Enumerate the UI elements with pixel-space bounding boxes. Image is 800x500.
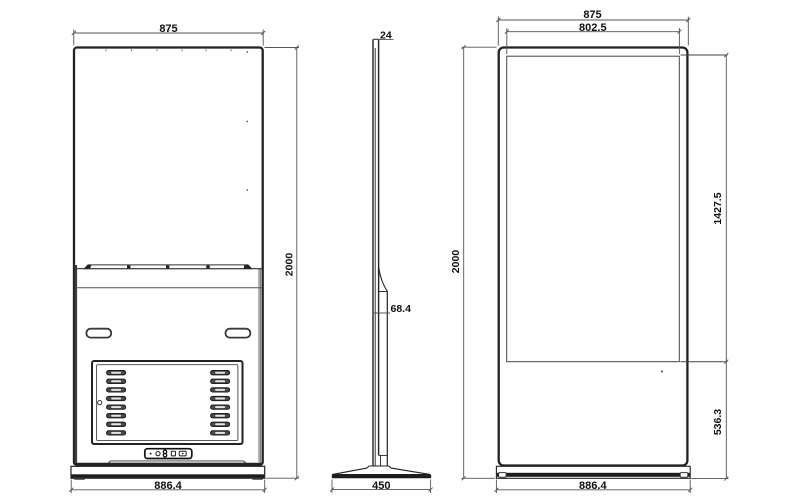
- svg-text:450: 450: [372, 480, 390, 492]
- svg-text:875: 875: [159, 23, 177, 35]
- svg-text:886.4: 886.4: [154, 480, 182, 492]
- svg-text:2000: 2000: [450, 250, 462, 274]
- svg-text:536.3: 536.3: [712, 409, 724, 435]
- svg-text:875: 875: [583, 9, 601, 21]
- svg-text:802.5: 802.5: [579, 22, 607, 34]
- svg-text:24: 24: [380, 30, 392, 42]
- svg-text:68.4: 68.4: [391, 303, 412, 315]
- svg-text:886.4: 886.4: [579, 480, 607, 492]
- svg-text:1427.5: 1427.5: [712, 192, 724, 224]
- svg-text:2000: 2000: [283, 253, 295, 277]
